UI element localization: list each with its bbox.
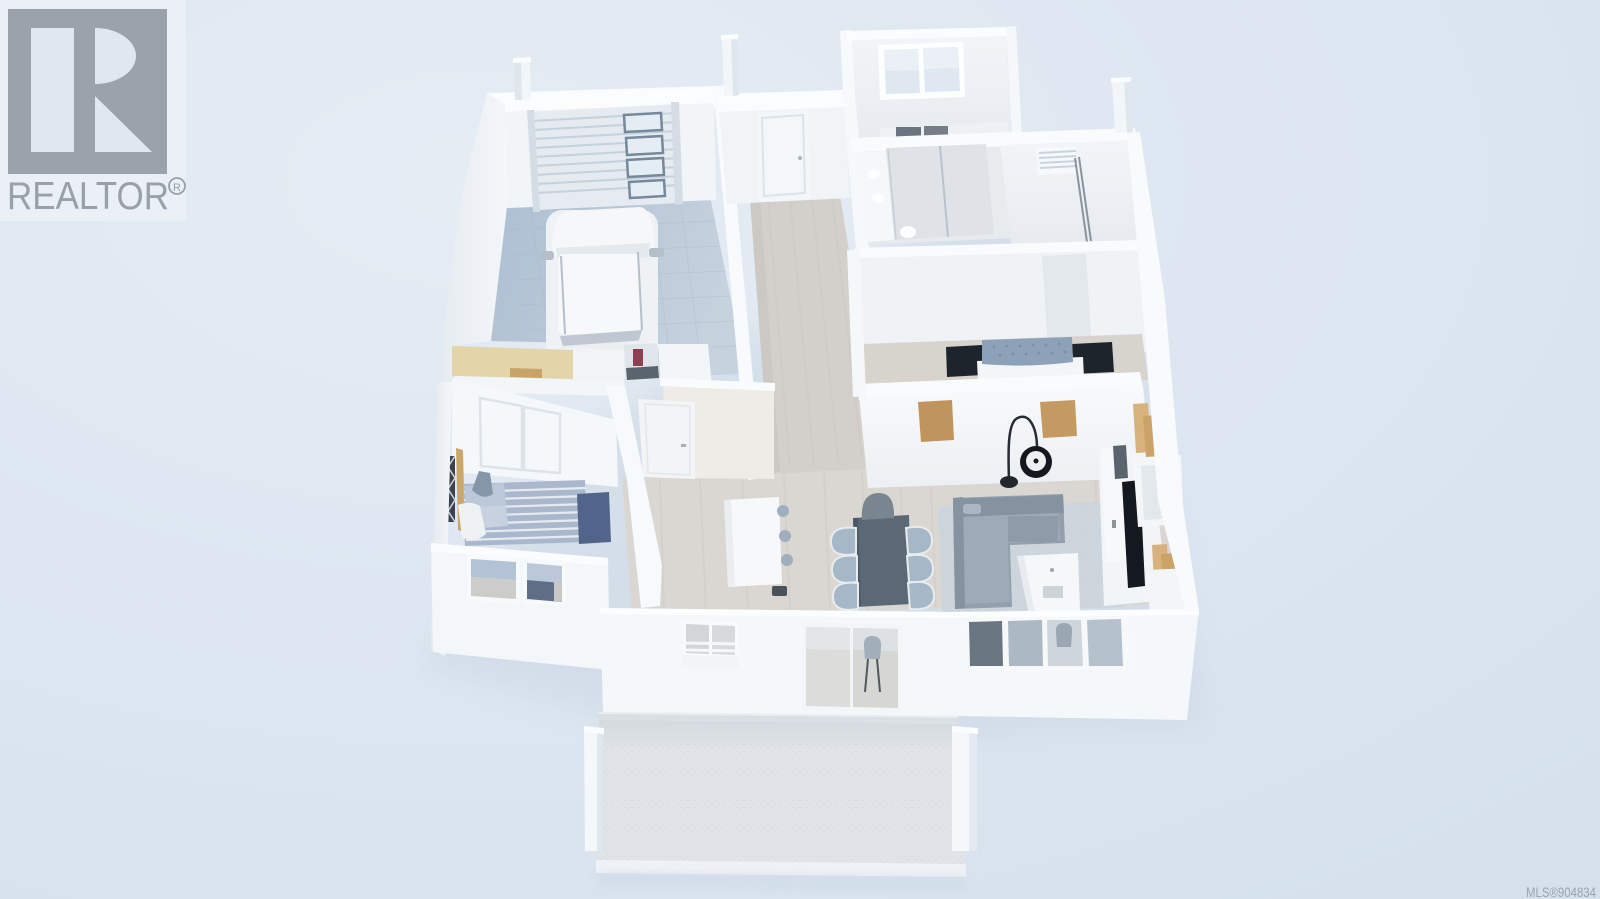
svg-text:REALTOR: REALTOR [7, 175, 169, 218]
svg-text:MLS®904834: MLS®904834 [1526, 884, 1596, 899]
svg-text:R: R [173, 182, 181, 194]
